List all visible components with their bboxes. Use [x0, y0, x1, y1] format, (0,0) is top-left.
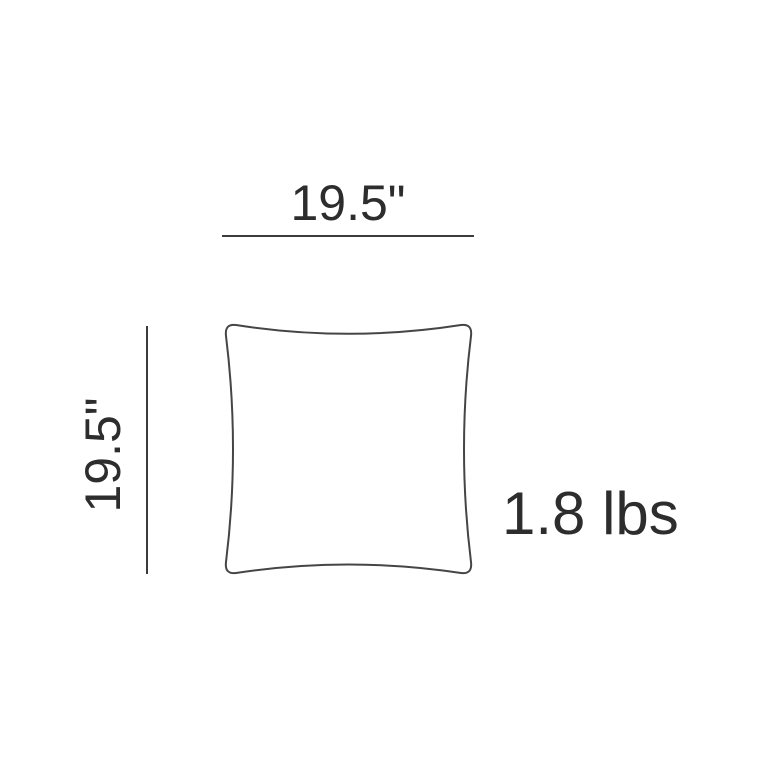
pillow-outline-drawing	[0, 0, 768, 768]
pillow-outline-path	[226, 325, 471, 573]
pillow-dimension-diagram: 19.5" 19.5" 1.8 lbs	[0, 0, 768, 768]
weight-label: 1.8 lbs	[502, 484, 679, 544]
